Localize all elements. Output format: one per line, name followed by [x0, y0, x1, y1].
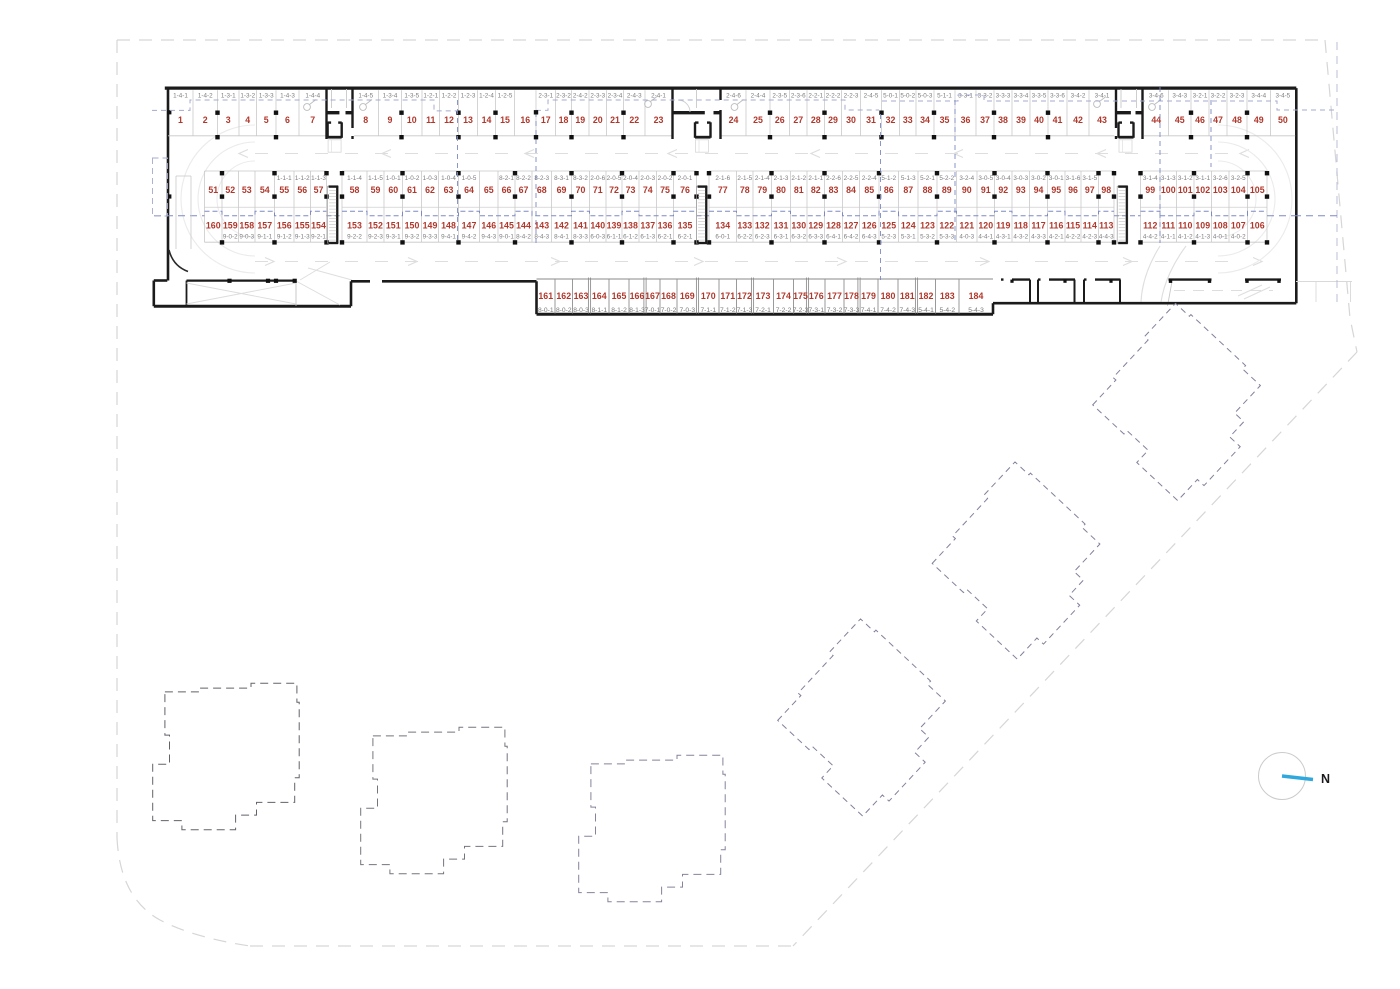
svg-text:3-3-2: 3-3-2 — [978, 92, 993, 99]
svg-text:2-2-1: 2-2-1 — [808, 92, 823, 99]
svg-text:2-3-3: 2-3-3 — [590, 92, 605, 99]
svg-text:6-4-1: 6-4-1 — [826, 234, 841, 241]
svg-text:12: 12 — [444, 115, 454, 125]
svg-text:1-0-3: 1-0-3 — [423, 175, 438, 182]
svg-text:40: 40 — [1034, 115, 1044, 125]
svg-text:3-2-1: 3-2-1 — [1193, 92, 1208, 99]
svg-text:7-3-2: 7-3-2 — [827, 307, 843, 314]
svg-text:1-0-4: 1-0-4 — [441, 175, 456, 182]
svg-text:8-1-3: 8-1-3 — [629, 307, 645, 314]
svg-text:138: 138 — [623, 221, 638, 231]
svg-text:144: 144 — [516, 221, 531, 231]
svg-text:8: 8 — [363, 115, 368, 125]
svg-text:106: 106 — [1250, 221, 1265, 231]
svg-text:2-3-1: 2-3-1 — [538, 92, 553, 99]
svg-text:3-3-6: 3-3-6 — [1050, 92, 1065, 99]
svg-text:2-4-3: 2-4-3 — [627, 92, 642, 99]
svg-text:5-0-3: 5-0-3 — [918, 92, 933, 99]
svg-text:1-2-5: 1-2-5 — [498, 92, 513, 99]
svg-text:143: 143 — [534, 221, 549, 231]
svg-text:7-3-1: 7-3-1 — [808, 307, 824, 314]
svg-text:101: 101 — [1178, 185, 1193, 195]
svg-text:155: 155 — [295, 221, 310, 231]
svg-text:5-1-1: 5-1-1 — [937, 92, 952, 99]
svg-text:1-1-4: 1-1-4 — [347, 175, 362, 182]
svg-text:79: 79 — [757, 185, 767, 195]
svg-text:100: 100 — [1161, 185, 1176, 195]
svg-text:168: 168 — [661, 291, 676, 301]
svg-text:6-2-3: 6-2-3 — [755, 234, 770, 241]
svg-text:9-3-2: 9-3-2 — [405, 234, 420, 241]
svg-text:104: 104 — [1231, 185, 1246, 195]
svg-text:2-3-5: 2-3-5 — [772, 92, 787, 99]
svg-text:105: 105 — [1250, 185, 1265, 195]
svg-text:8-1-2: 8-1-2 — [611, 307, 627, 314]
svg-text:9-4-3: 9-4-3 — [481, 234, 496, 241]
svg-text:170: 170 — [701, 291, 716, 301]
svg-text:2-0-2: 2-0-2 — [658, 175, 673, 182]
svg-text:1-3-2: 1-3-2 — [240, 92, 255, 99]
svg-text:2-4-4: 2-4-4 — [751, 92, 766, 99]
svg-text:2-0-1: 2-0-1 — [678, 175, 693, 182]
svg-text:81: 81 — [794, 185, 804, 195]
svg-text:9-1-3: 9-1-3 — [295, 234, 310, 241]
svg-text:121: 121 — [959, 221, 974, 231]
svg-text:3-4-2: 3-4-2 — [1071, 92, 1086, 99]
svg-text:5-0-2: 5-0-2 — [900, 92, 915, 99]
svg-text:157: 157 — [257, 221, 272, 231]
svg-text:4-2-1: 4-2-1 — [1049, 234, 1064, 241]
svg-text:110: 110 — [1178, 221, 1192, 231]
svg-text:148: 148 — [441, 221, 456, 231]
svg-text:59: 59 — [371, 185, 381, 195]
svg-text:41: 41 — [1053, 115, 1063, 125]
svg-text:158: 158 — [239, 221, 254, 231]
svg-text:5: 5 — [264, 115, 269, 125]
svg-text:8-1-1: 8-1-1 — [591, 307, 607, 314]
svg-text:2-1-5: 2-1-5 — [737, 175, 752, 182]
svg-text:3-4-3: 3-4-3 — [1172, 92, 1187, 99]
svg-text:96: 96 — [1068, 185, 1078, 195]
svg-text:4-3-1: 4-3-1 — [996, 234, 1011, 241]
svg-text:8-0-1: 8-0-1 — [538, 307, 554, 314]
svg-text:3-1-5: 3-1-5 — [1082, 175, 1097, 182]
svg-text:65: 65 — [484, 185, 494, 195]
svg-text:N: N — [1321, 772, 1330, 786]
svg-text:114: 114 — [1083, 221, 1097, 231]
svg-text:1-3-4: 1-3-4 — [383, 92, 398, 99]
svg-text:3-1-3: 3-1-3 — [1161, 175, 1176, 182]
svg-text:3-0-3: 3-0-3 — [1013, 175, 1028, 182]
svg-text:109: 109 — [1195, 221, 1210, 231]
svg-text:20: 20 — [593, 115, 603, 125]
svg-text:156: 156 — [277, 221, 292, 231]
svg-text:2-4-5: 2-4-5 — [864, 92, 879, 99]
svg-text:8-0-2: 8-0-2 — [556, 307, 572, 314]
svg-text:133: 133 — [737, 221, 752, 231]
svg-text:5-1-3: 5-1-3 — [901, 175, 916, 182]
svg-text:7-4-2: 7-4-2 — [880, 307, 896, 314]
svg-text:8-2-2: 8-2-2 — [516, 175, 531, 182]
svg-text:7-0-3: 7-0-3 — [679, 307, 695, 314]
svg-text:153: 153 — [347, 221, 362, 231]
svg-text:89: 89 — [942, 185, 952, 195]
svg-text:8-2-3: 8-2-3 — [534, 175, 549, 182]
svg-text:4: 4 — [245, 115, 250, 125]
svg-text:1-4-3: 1-4-3 — [280, 92, 295, 99]
svg-text:183: 183 — [940, 291, 955, 301]
svg-text:4-3-2: 4-3-2 — [1013, 234, 1028, 241]
svg-text:4-1-2: 4-1-2 — [1178, 234, 1193, 241]
svg-text:8-2-1: 8-2-1 — [499, 175, 514, 182]
svg-text:8-4-2: 8-4-2 — [516, 234, 531, 241]
svg-text:2-2-5: 2-2-5 — [844, 175, 859, 182]
svg-text:173: 173 — [756, 291, 771, 301]
svg-text:3: 3 — [226, 115, 231, 125]
svg-text:1-4-2: 1-4-2 — [198, 92, 213, 99]
svg-text:5-4-2: 5-4-2 — [939, 307, 955, 314]
svg-text:56: 56 — [297, 185, 307, 195]
svg-text:167: 167 — [645, 291, 660, 301]
svg-text:22: 22 — [629, 115, 639, 125]
svg-text:4-0-1: 4-0-1 — [1213, 234, 1228, 241]
svg-text:174: 174 — [776, 291, 791, 301]
svg-text:5-3-3: 5-3-3 — [939, 234, 954, 241]
svg-text:9-2-3: 9-2-3 — [368, 234, 383, 241]
svg-text:3-1-2: 3-1-2 — [1178, 175, 1193, 182]
svg-text:9-0-3: 9-0-3 — [239, 234, 254, 241]
svg-text:3-2-4: 3-2-4 — [959, 175, 974, 182]
svg-text:6-3-1: 6-3-1 — [774, 234, 789, 241]
svg-text:30: 30 — [846, 115, 856, 125]
svg-text:24: 24 — [729, 115, 739, 125]
svg-text:107: 107 — [1231, 221, 1246, 231]
svg-text:1-0-2: 1-0-2 — [405, 175, 420, 182]
svg-text:3-0-4: 3-0-4 — [996, 175, 1011, 182]
svg-text:1-2-2: 1-2-2 — [442, 92, 457, 99]
svg-text:176: 176 — [809, 291, 824, 301]
svg-text:2: 2 — [203, 115, 208, 125]
svg-text:6-2-2: 6-2-2 — [737, 234, 752, 241]
svg-text:5-4-3: 5-4-3 — [968, 307, 984, 314]
svg-text:175: 175 — [793, 291, 808, 301]
svg-text:151: 151 — [386, 221, 401, 231]
svg-text:130: 130 — [791, 221, 806, 231]
svg-text:120: 120 — [978, 221, 993, 231]
svg-text:53: 53 — [242, 185, 252, 195]
svg-text:135: 135 — [678, 221, 693, 231]
svg-text:1-2-4: 1-2-4 — [479, 92, 494, 99]
svg-text:3-2-5: 3-2-5 — [1231, 175, 1246, 182]
svg-text:23: 23 — [654, 115, 664, 125]
svg-text:85: 85 — [864, 185, 874, 195]
svg-text:7-2-2: 7-2-2 — [776, 307, 792, 314]
svg-text:55: 55 — [279, 185, 289, 195]
svg-text:8-3-1: 8-3-1 — [554, 175, 569, 182]
svg-text:60: 60 — [388, 185, 398, 195]
svg-text:103: 103 — [1213, 185, 1228, 195]
svg-text:1-2-3: 1-2-3 — [461, 92, 476, 99]
svg-text:6-0-1: 6-0-1 — [715, 234, 730, 241]
svg-text:36: 36 — [961, 115, 971, 125]
svg-text:18: 18 — [559, 115, 569, 125]
svg-text:2-2-4: 2-2-4 — [862, 175, 877, 182]
svg-text:90: 90 — [962, 185, 972, 195]
svg-text:1-3-1: 1-3-1 — [221, 92, 236, 99]
svg-text:2-1-4: 2-1-4 — [755, 175, 770, 182]
svg-text:5-0-1: 5-0-1 — [883, 92, 898, 99]
svg-text:78: 78 — [740, 185, 750, 195]
svg-text:93: 93 — [1016, 185, 1026, 195]
svg-text:3-0-1: 3-0-1 — [1049, 175, 1064, 182]
svg-text:1-3-3: 1-3-3 — [259, 92, 274, 99]
svg-text:8-3-3: 8-3-3 — [573, 234, 588, 241]
svg-text:63: 63 — [444, 185, 454, 195]
svg-text:4-2-3: 4-2-3 — [1082, 234, 1097, 241]
svg-text:2-1-3: 2-1-3 — [774, 175, 789, 182]
svg-text:139: 139 — [607, 221, 622, 231]
svg-text:180: 180 — [881, 291, 896, 301]
svg-text:149: 149 — [423, 221, 438, 231]
svg-text:75: 75 — [660, 185, 670, 195]
svg-text:66: 66 — [502, 185, 512, 195]
svg-text:8-0-3: 8-0-3 — [573, 307, 589, 314]
svg-text:49: 49 — [1254, 115, 1264, 125]
svg-text:4-4-3: 4-4-3 — [1099, 234, 1114, 241]
svg-text:178: 178 — [844, 291, 859, 301]
svg-text:2-4-2: 2-4-2 — [573, 92, 588, 99]
svg-text:7-2-3: 7-2-3 — [793, 307, 809, 314]
svg-text:2-3-2: 2-3-2 — [556, 92, 571, 99]
svg-text:127: 127 — [844, 221, 859, 231]
svg-text:4-3-3: 4-3-3 — [1031, 234, 1046, 241]
svg-text:182: 182 — [919, 291, 934, 301]
svg-text:3-4-5: 3-4-5 — [1275, 92, 1290, 99]
svg-text:7-4-1: 7-4-1 — [861, 307, 877, 314]
svg-text:6-1-1: 6-1-1 — [607, 234, 622, 241]
svg-text:8-4-1: 8-4-1 — [554, 234, 569, 241]
svg-text:48: 48 — [1232, 115, 1242, 125]
svg-text:172: 172 — [737, 291, 752, 301]
svg-text:3-4-4: 3-4-4 — [1251, 92, 1266, 99]
svg-text:50: 50 — [1278, 115, 1288, 125]
svg-text:51: 51 — [208, 185, 218, 195]
svg-text:3-3-5: 3-3-5 — [1032, 92, 1047, 99]
svg-text:3-4-1: 3-4-1 — [1095, 92, 1110, 99]
svg-text:2-3-6: 2-3-6 — [791, 92, 806, 99]
svg-text:16: 16 — [520, 115, 530, 125]
svg-text:70: 70 — [576, 185, 586, 195]
svg-text:69: 69 — [557, 185, 567, 195]
svg-text:58: 58 — [350, 185, 360, 195]
svg-text:154: 154 — [311, 221, 326, 231]
svg-text:9-4-2: 9-4-2 — [462, 234, 477, 241]
svg-text:3-3-3: 3-3-3 — [996, 92, 1011, 99]
svg-text:54: 54 — [260, 185, 270, 195]
svg-text:67: 67 — [519, 185, 529, 195]
svg-text:3-0-5: 3-0-5 — [978, 175, 993, 182]
svg-text:147: 147 — [462, 221, 477, 231]
svg-text:34: 34 — [920, 115, 930, 125]
svg-text:2-2-6: 2-2-6 — [826, 175, 841, 182]
svg-text:3-1-1: 3-1-1 — [1195, 175, 1210, 182]
svg-text:77: 77 — [718, 185, 728, 195]
svg-text:118: 118 — [1014, 221, 1028, 231]
svg-text:62: 62 — [425, 185, 435, 195]
svg-text:122: 122 — [939, 221, 954, 231]
svg-text:2-0-5: 2-0-5 — [607, 175, 622, 182]
svg-text:26: 26 — [775, 115, 785, 125]
svg-text:47: 47 — [1213, 115, 1223, 125]
svg-text:162: 162 — [556, 291, 571, 301]
svg-text:5-1-2: 5-1-2 — [881, 175, 896, 182]
svg-text:80: 80 — [776, 185, 786, 195]
svg-text:42: 42 — [1073, 115, 1083, 125]
svg-text:39: 39 — [1016, 115, 1026, 125]
svg-text:7-0-2: 7-0-2 — [661, 307, 677, 314]
svg-text:15: 15 — [500, 115, 510, 125]
svg-text:7-1-2: 7-1-2 — [720, 307, 736, 314]
svg-text:3-4-6: 3-4-6 — [1149, 92, 1164, 99]
svg-text:45: 45 — [1175, 115, 1185, 125]
svg-text:117: 117 — [1031, 221, 1045, 231]
svg-text:98: 98 — [1101, 185, 1111, 195]
svg-text:145: 145 — [499, 221, 514, 231]
svg-text:4-2-2: 4-2-2 — [1066, 234, 1081, 241]
svg-text:76: 76 — [680, 185, 690, 195]
svg-text:5-2-2: 5-2-2 — [939, 175, 954, 182]
svg-text:92: 92 — [998, 185, 1008, 195]
svg-text:3-3-1: 3-3-1 — [958, 92, 973, 99]
svg-text:102: 102 — [1195, 185, 1210, 195]
svg-text:38: 38 — [998, 115, 1008, 125]
svg-text:5-3-1: 5-3-1 — [901, 234, 916, 241]
svg-text:4-4-1: 4-4-1 — [978, 234, 993, 241]
svg-text:19: 19 — [575, 115, 585, 125]
svg-text:25: 25 — [753, 115, 763, 125]
svg-text:113: 113 — [1099, 221, 1113, 231]
svg-text:1-0-5: 1-0-5 — [462, 175, 477, 182]
svg-text:2-4-1: 2-4-1 — [651, 92, 666, 99]
svg-text:21: 21 — [610, 115, 620, 125]
svg-text:165: 165 — [612, 291, 627, 301]
svg-text:14: 14 — [482, 115, 492, 125]
svg-text:141: 141 — [573, 221, 588, 231]
svg-text:6-2-1: 6-2-1 — [678, 234, 693, 241]
svg-text:3-2-2: 3-2-2 — [1211, 92, 1226, 99]
svg-text:119: 119 — [996, 221, 1010, 231]
svg-text:9-2-2: 9-2-2 — [347, 234, 362, 241]
svg-text:3-0-2: 3-0-2 — [1031, 175, 1046, 182]
svg-text:124: 124 — [901, 221, 916, 231]
svg-text:128: 128 — [826, 221, 841, 231]
svg-text:91: 91 — [981, 185, 991, 195]
svg-text:4-4-2: 4-4-2 — [1143, 234, 1158, 241]
svg-text:2-0-6: 2-0-6 — [590, 175, 605, 182]
svg-text:27: 27 — [793, 115, 803, 125]
svg-text:33: 33 — [903, 115, 913, 125]
svg-text:3-2-3: 3-2-3 — [1230, 92, 1245, 99]
svg-text:7-3-3: 7-3-3 — [844, 307, 860, 314]
svg-text:28: 28 — [811, 115, 821, 125]
svg-text:86: 86 — [884, 185, 894, 195]
svg-text:6-1-2: 6-1-2 — [623, 234, 638, 241]
svg-text:7-2-1: 7-2-1 — [755, 307, 771, 314]
svg-text:129: 129 — [808, 221, 823, 231]
svg-text:9: 9 — [388, 115, 393, 125]
svg-text:88: 88 — [923, 185, 933, 195]
svg-text:7-1-3: 7-1-3 — [737, 307, 753, 314]
svg-text:9-4-1: 9-4-1 — [441, 234, 456, 241]
svg-text:3-1-4: 3-1-4 — [1143, 175, 1158, 182]
svg-text:115: 115 — [1066, 221, 1080, 231]
svg-text:2-2-3: 2-2-3 — [844, 92, 859, 99]
svg-text:87: 87 — [903, 185, 913, 195]
svg-text:95: 95 — [1051, 185, 1061, 195]
svg-text:2-1-1: 2-1-1 — [808, 175, 823, 182]
svg-text:1-4-4: 1-4-4 — [305, 92, 320, 99]
svg-text:161: 161 — [538, 291, 553, 301]
svg-text:164: 164 — [592, 291, 607, 301]
svg-text:6-4-2: 6-4-2 — [844, 234, 859, 241]
svg-text:159: 159 — [223, 221, 238, 231]
svg-text:73: 73 — [626, 185, 636, 195]
svg-text:4-0-3: 4-0-3 — [959, 234, 974, 241]
svg-text:1-1-1: 1-1-1 — [277, 175, 292, 182]
svg-text:2-1-6: 2-1-6 — [715, 175, 730, 182]
svg-text:125: 125 — [881, 221, 896, 231]
svg-text:61: 61 — [407, 185, 417, 195]
svg-text:82: 82 — [811, 185, 821, 195]
svg-text:142: 142 — [554, 221, 569, 231]
svg-text:150: 150 — [405, 221, 420, 231]
svg-text:169: 169 — [680, 291, 695, 301]
svg-text:1-2-1: 1-2-1 — [423, 92, 438, 99]
svg-text:9-3-1: 9-3-1 — [386, 234, 401, 241]
svg-text:46: 46 — [1195, 115, 1205, 125]
svg-text:29: 29 — [828, 115, 838, 125]
svg-text:6-3-2: 6-3-2 — [791, 234, 806, 241]
svg-text:8-4-3: 8-4-3 — [534, 234, 549, 241]
svg-text:64: 64 — [464, 185, 474, 195]
svg-text:152: 152 — [368, 221, 383, 231]
svg-text:1-4-1: 1-4-1 — [173, 92, 188, 99]
svg-text:137: 137 — [640, 221, 655, 231]
svg-text:97: 97 — [1085, 185, 1095, 195]
svg-text:116: 116 — [1049, 221, 1063, 231]
svg-text:72: 72 — [609, 185, 619, 195]
svg-text:166: 166 — [630, 291, 645, 301]
svg-text:17: 17 — [541, 115, 551, 125]
svg-text:177: 177 — [827, 291, 842, 301]
svg-text:134: 134 — [715, 221, 730, 231]
svg-text:111: 111 — [1161, 221, 1175, 231]
svg-text:10: 10 — [407, 115, 417, 125]
svg-text:171: 171 — [720, 291, 735, 301]
svg-text:123: 123 — [920, 221, 935, 231]
svg-text:2-0-3: 2-0-3 — [640, 175, 655, 182]
svg-text:32: 32 — [886, 115, 896, 125]
svg-text:6-0-3: 6-0-3 — [590, 234, 605, 241]
svg-text:140: 140 — [590, 221, 605, 231]
svg-text:9-0-2: 9-0-2 — [223, 234, 238, 241]
svg-text:94: 94 — [1034, 185, 1044, 195]
svg-text:99: 99 — [1145, 185, 1155, 195]
svg-text:83: 83 — [829, 185, 839, 195]
svg-text:2-2-2: 2-2-2 — [826, 92, 841, 99]
svg-text:9-1-1: 9-1-1 — [257, 234, 272, 241]
svg-text:6-1-3: 6-1-3 — [640, 234, 655, 241]
